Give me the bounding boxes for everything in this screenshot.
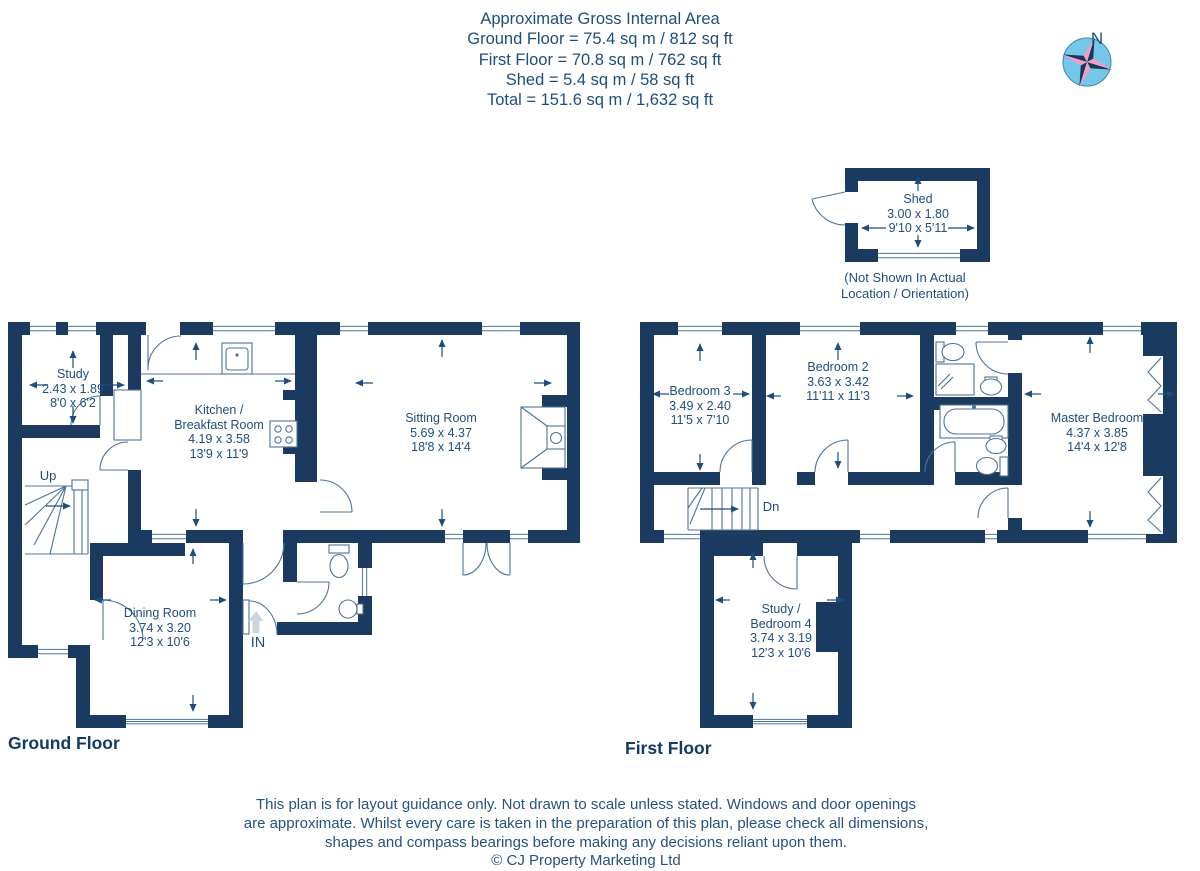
shed-door <box>812 192 845 225</box>
page-title: Approximate Gross Internal Area <box>0 9 1200 29</box>
room-label-sitting-room: Sitting Room 5.69 x 4.37 18'8 x 14'4 <box>371 411 511 455</box>
bathroom-toilet-icon <box>977 457 1009 476</box>
ground-floor-title: Ground Floor <box>8 733 120 754</box>
disclaimer-line: are approximate. Whilst every care is ta… <box>0 815 1172 834</box>
entrance-arrow-icon <box>249 611 264 633</box>
shower-icon <box>936 364 974 395</box>
first-floor-plan <box>640 322 1177 728</box>
room-label-dining-room: Dining Room 3.74 x 3.20 12'3 x 10'6 <box>90 606 230 650</box>
fireplace-icon <box>521 407 565 468</box>
room-label-bedroom-2: Bedroom 2 3.63 x 3.42 11'11 x 11'3 <box>768 360 908 404</box>
area-line-first: First Floor = 70.8 sq m / 762 sq ft <box>0 50 1200 70</box>
kitchen-sink-icon <box>222 343 252 374</box>
shower-room-toilet-icon <box>936 342 964 362</box>
bathroom-basin-icon <box>986 436 1006 454</box>
area-line-shed: Shed = 5.4 sq m / 58 sq ft <box>0 70 1200 90</box>
ff-stairs <box>688 488 758 530</box>
area-line-ground: Ground Floor = 75.4 sq m / 812 sq ft <box>0 29 1200 49</box>
ff-walls <box>640 322 1177 728</box>
room-label-bedroom-3: Bedroom 3 3.49 x 2.40 11'5 x 7'10 <box>630 384 770 428</box>
gf-stairs <box>25 480 88 554</box>
first-floor-title: First Floor <box>625 738 712 759</box>
floorplan-page: N <box>0 0 1200 871</box>
room-label-master-bedroom: Master Bedroom 4.37 x 3.85 14'4 x 12'8 <box>1027 411 1167 455</box>
room-label-shed: Shed 3.00 x 1.80 9'10 x 5'11 <box>848 192 988 236</box>
area-summary: Approximate Gross Internal Area Ground F… <box>0 9 1200 110</box>
wc-toilet-icon <box>329 545 349 578</box>
area-line-total: Total = 151.6 sq m / 1,632 sq ft <box>0 90 1200 110</box>
room-label-kitchen: Kitchen / Breakfast Room 4.19 x 3.58 13'… <box>149 403 289 461</box>
disclaimer-line: This plan is for layout guidance only. N… <box>0 796 1172 815</box>
bath-icon <box>940 405 1008 438</box>
disclaimer-line: shapes and compass bearings before makin… <box>0 834 1172 853</box>
shed-note: (Not Shown In Actual Location / Orientat… <box>803 270 1007 301</box>
shed-window <box>878 249 960 262</box>
room-label-study: Study 2.43 x 1.89 8'0 x 6'2 <box>3 367 143 411</box>
entrance-in-label: IN <box>243 635 273 651</box>
disclaimer: This plan is for layout guidance only. N… <box>0 796 1172 871</box>
copyright: © CJ Property Marketing Ltd <box>0 852 1172 871</box>
stairs-dn-label: Dn <box>756 499 786 514</box>
ff-windows <box>664 322 1163 728</box>
room-label-study-bedroom-4: Study / Bedroom 4 3.74 x 3.19 12'3 x 10'… <box>711 602 851 660</box>
stairs-up-label: Up <box>33 468 63 483</box>
shower-room-basin-icon <box>981 377 1002 395</box>
